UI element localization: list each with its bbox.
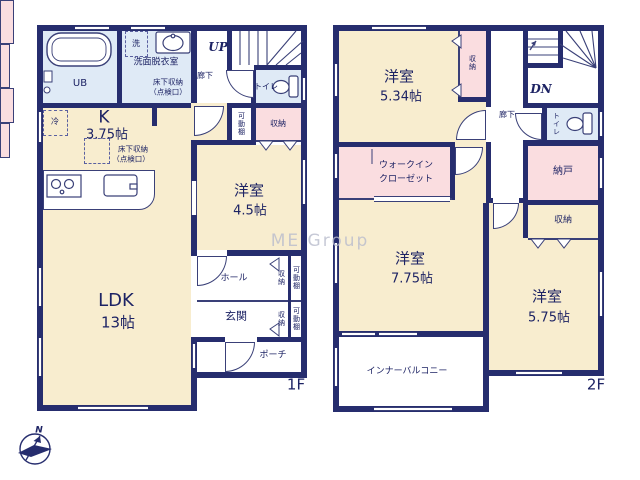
hall-closet-shelf-label: 可動棚 [293,266,300,290]
stairs-up-label: UP [208,41,228,53]
corridor-2f-label: 廊下 [499,111,515,119]
sink-icon [104,175,137,196]
west-room-45-label: 洋室 [234,184,264,199]
wic-label-1: ウォークイン [379,162,433,171]
compass-north-label: N [35,427,43,436]
fridge-label: 冷 [51,118,59,126]
stairs-down-label: DN [530,83,551,95]
room-575-label: 洋室 [532,290,562,305]
toilet-2f-label: トイレ [553,112,560,136]
toilet-1f-label: トイレ [254,83,278,91]
corridor-1f-label: 廊下 [197,72,213,80]
room-775-size-label: 7.75帖 [391,273,433,286]
kitchen-label: K [98,110,109,127]
room-775-label: 洋室 [395,252,425,267]
west-room-45-size-label: 4.5帖 [233,205,267,218]
floor-2f-label: 2F [587,378,605,393]
kitchen-underfloor-label-2: （点検口） [112,155,150,163]
stairs-1f-treads [240,31,303,65]
stove-icon [47,175,81,197]
storeroom-label: 納戸 [553,167,573,177]
washbasin-icon [156,32,190,53]
washer-label: 洗 [132,40,140,48]
ldk-label: LDK [98,292,134,310]
toilet-2f-icon [567,113,592,134]
entrance-label: 玄関 [225,311,247,322]
room-534-label: 洋室 [384,70,414,85]
genkan-closet-storage-label: 収納 [278,311,285,327]
bathtub-icon [47,33,111,66]
balcony-label: インナーバルコニー [367,368,448,377]
wic-label-2: クローゼット [379,176,433,185]
washroom-underfloor-label-2: （点検口） [149,88,187,96]
washroom-underfloor-label-1: 床下収納 [153,78,183,86]
hall-label: ホール [220,275,247,284]
watermark: ME Group [271,231,370,251]
closet-upper-label: 収納 [270,120,286,128]
floor-plan: UB 洗 洗面脱衣室 床下収納 （点検口） 廊下 UP トイレ 収納 可動棚 冷… [0,0,640,480]
folding-door-triangles [259,35,571,336]
shelf-upper-label: 可動棚 [238,112,245,136]
kitchen-size-label: 3.75帖 [86,129,128,142]
room-534-size-label: 5.34帖 [380,91,422,104]
closet-2f-label: 収納 [554,217,572,226]
ldk-size-label: 13帖 [101,316,135,331]
stairs-2f-treads [528,31,596,68]
kitchen-underfloor-label-1: 床下収納 [118,145,148,153]
room-575-size-label: 5.75帖 [528,312,570,325]
genkan-closet-shelf-label: 可動棚 [293,307,300,331]
washroom-label: 洗面脱衣室 [133,59,178,68]
room-534-closet-label: 収納 [469,55,476,71]
compass-icon [18,434,52,464]
bath-label: UB [73,79,87,89]
floor-1f-label: 1F [287,378,305,393]
porch-label: ポーチ [259,352,286,361]
hall-closet-storage-label: 収納 [278,270,285,286]
bath-fixtures-icon [44,71,52,93]
